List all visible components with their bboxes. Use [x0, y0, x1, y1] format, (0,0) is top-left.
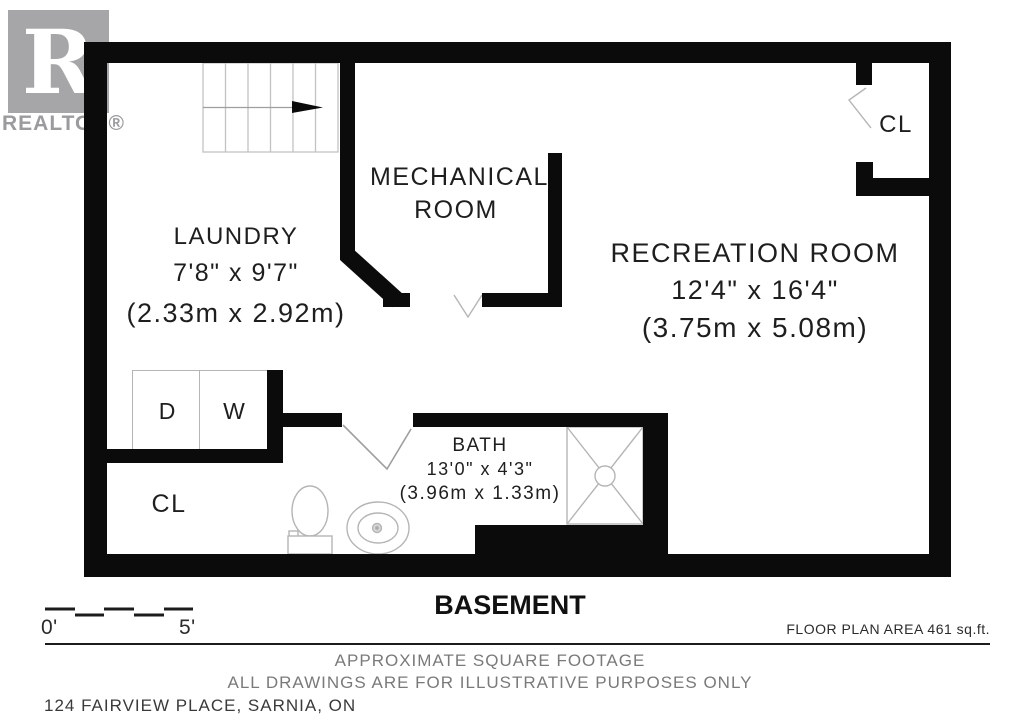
scale-start-label: 0': [41, 616, 81, 640]
wall-bath-south-step: [475, 525, 667, 557]
dryer-label: D: [159, 398, 176, 425]
disclaimer-line-1: APPROXIMATE SQUARE FOOTAGE: [140, 651, 840, 671]
recreation-size-metric: (3.75m x 5.08m): [585, 312, 925, 344]
scale-bar: [45, 609, 193, 615]
recreation-size-imperial: 12'4" x 16'4": [585, 275, 925, 306]
mechanical-room-name-line2: ROOM: [370, 196, 542, 225]
toilet-icon: [288, 486, 332, 554]
washer-label: W: [223, 398, 245, 425]
mechanical-room-name-line1: MECHANICAL: [370, 163, 542, 192]
wall-top: [84, 42, 951, 63]
dryer-box: D: [132, 370, 202, 452]
wall-bath-north: [413, 413, 668, 427]
floor-plan-page: R REALTOR®: [0, 0, 1024, 723]
laundry-room-name: LAUNDRY: [96, 223, 376, 251]
closet-upper-label: CL: [868, 111, 924, 139]
disclaimer-line-2: ALL DRAWINGS ARE FOR ILLUSTRATIVE PURPOS…: [140, 673, 840, 693]
bath-size-imperial: 13'0" x 4'3": [380, 459, 580, 480]
wall-closet-lower-north: [107, 449, 283, 463]
footer-divider: [45, 643, 990, 645]
property-address: 124 FAIRVIEW PLACE, SARNIA, ON: [44, 696, 544, 716]
washer-box: W: [199, 370, 269, 452]
toilet-bowl: [292, 486, 328, 536]
wall-bath-north-stub: [283, 413, 342, 427]
bath-room-name: BATH: [380, 435, 580, 457]
wall-right: [929, 42, 951, 577]
wall-mechanical-east: [548, 153, 562, 307]
sink-icon: [347, 502, 409, 554]
recreation-room-name: RECREATION ROOM: [585, 238, 925, 269]
sink-drain-dot: [376, 527, 379, 530]
shower-drain: [595, 466, 615, 486]
stair-direction-arrow-icon: [292, 101, 323, 113]
wall-closet-upper-jamb-bottom: [856, 162, 873, 179]
closet-lower-label: CL: [138, 490, 200, 519]
laundry-size-imperial: 7'8" x 9'7": [96, 259, 376, 288]
plan-title: BASEMENT: [395, 590, 625, 621]
laundry-size-metric: (2.33m x 2.92m): [96, 298, 376, 329]
wall-closet-upper-jamb-top: [856, 63, 872, 85]
toilet-tank: [288, 536, 332, 554]
wall-bottom: [84, 554, 951, 577]
wall-closet-upper-south: [856, 178, 930, 196]
floor-plan-area-note: FLOOR PLAN AREA 461 sq.ft.: [690, 621, 990, 637]
scale-end-label: 5': [179, 616, 219, 640]
wall-mechanical-south-stub: [383, 293, 410, 307]
bath-size-metric: (3.96m x 1.33m): [380, 483, 580, 505]
mechanical-door-swing-icon: [454, 295, 482, 317]
